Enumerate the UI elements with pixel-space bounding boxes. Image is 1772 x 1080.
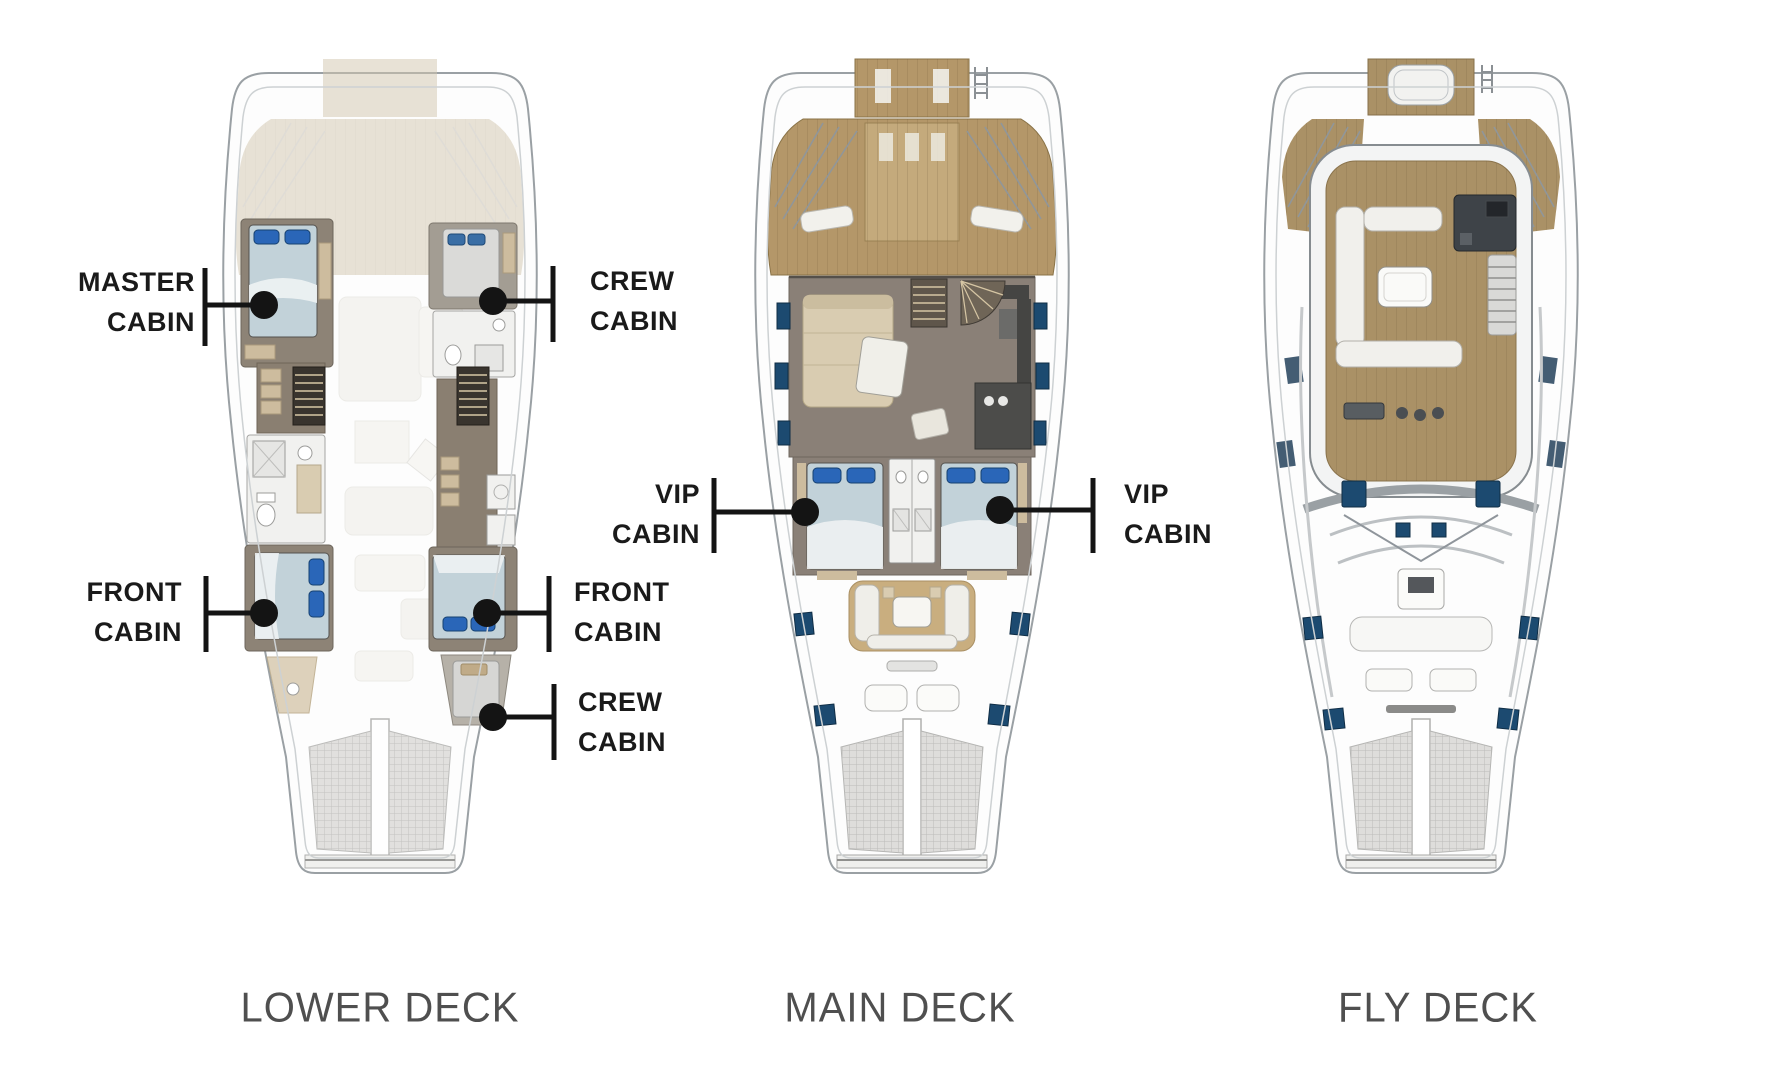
callout-front-cabin-port: FRONT CABIN: [40, 572, 182, 652]
callout-line: FRONT: [574, 572, 669, 612]
callout-line: CABIN: [540, 514, 700, 554]
callout-leader-lines: [0, 0, 1772, 1080]
callout-line: CREW: [578, 682, 666, 722]
callout-line: CABIN: [574, 612, 669, 652]
callout-crew-cabin-aft: CREW CABIN: [590, 261, 678, 341]
callout-line: VIP: [540, 474, 700, 514]
callout-line: CREW: [590, 261, 678, 301]
callout-vip-cabin-port: VIP CABIN: [540, 474, 700, 554]
callout-line: CABIN: [578, 722, 666, 762]
callout-line: CABIN: [40, 302, 195, 342]
callout-vip-cabin-stbd: VIP CABIN: [1124, 474, 1212, 554]
callout-line: CABIN: [40, 612, 182, 652]
floorplan-canvas: MASTER CABIN CREW CABIN FRONT CABIN FRON…: [0, 0, 1772, 1080]
callout-line: MASTER: [40, 262, 195, 302]
callout-crew-cabin-bow: CREW CABIN: [578, 682, 666, 762]
callout-line: FRONT: [40, 572, 182, 612]
callout-master-cabin: MASTER CABIN: [40, 262, 195, 342]
deck-title-fly: FLY DECK: [1338, 985, 1538, 1032]
callout-line: CABIN: [1124, 514, 1212, 554]
callout-front-cabin-stbd: FRONT CABIN: [574, 572, 669, 652]
deck-title-lower: LOWER DECK: [241, 985, 520, 1032]
callout-line: VIP: [1124, 474, 1212, 514]
callout-line: CABIN: [590, 301, 678, 341]
deck-title-main: MAIN DECK: [784, 985, 1015, 1032]
